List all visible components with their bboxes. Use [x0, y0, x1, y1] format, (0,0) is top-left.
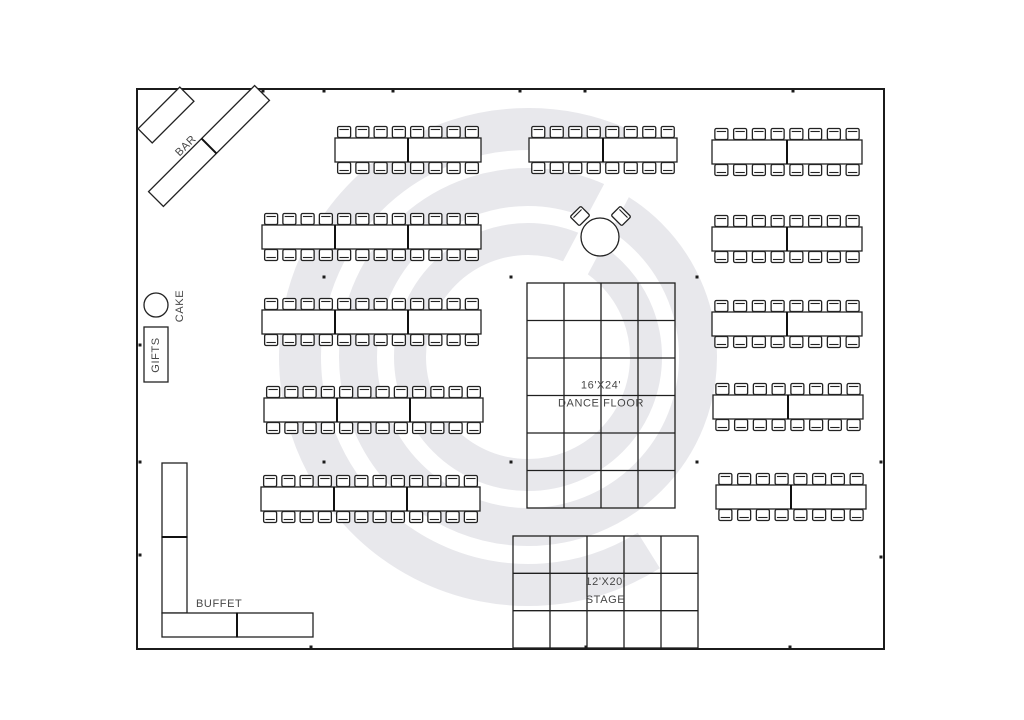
- round-table-top: [581, 218, 619, 256]
- chair: [794, 474, 807, 485]
- banquet-table: [712, 301, 862, 348]
- chair: [356, 299, 369, 310]
- chair: [374, 127, 387, 138]
- chair: [447, 250, 460, 261]
- chair: [827, 252, 840, 263]
- table-top: [262, 310, 481, 334]
- chair: [624, 163, 637, 174]
- banquet-table: [713, 384, 863, 431]
- chair: [846, 252, 859, 263]
- chair: [355, 512, 368, 523]
- chair: [447, 163, 460, 174]
- dance-floor-label: DANCE FLOOR: [558, 398, 644, 410]
- chair: [809, 216, 822, 227]
- chair: [846, 301, 859, 312]
- chair: [374, 299, 387, 310]
- chair: [264, 476, 277, 487]
- chair: [719, 474, 732, 485]
- chair: [447, 299, 460, 310]
- chair: [429, 214, 442, 225]
- chair: [376, 423, 389, 434]
- chair: [752, 129, 765, 140]
- chair: [465, 299, 478, 310]
- chair: [752, 165, 765, 176]
- chair: [265, 214, 278, 225]
- chair: [790, 129, 803, 140]
- chair: [318, 476, 331, 487]
- chair: [810, 420, 823, 431]
- chair: [850, 474, 863, 485]
- chair: [411, 163, 424, 174]
- chair: [392, 214, 405, 225]
- chair: [715, 301, 728, 312]
- chair: [464, 512, 477, 523]
- chair: [413, 387, 426, 398]
- chair: [790, 252, 803, 263]
- chair: [587, 127, 600, 138]
- chair: [301, 250, 314, 261]
- chair: [828, 384, 841, 395]
- chair: [319, 335, 332, 346]
- chair: [410, 476, 423, 487]
- chair: [771, 301, 784, 312]
- stage-size-label: 12'X20': [585, 576, 625, 588]
- chair: [734, 252, 747, 263]
- chair: [734, 337, 747, 348]
- chair: [429, 250, 442, 261]
- chair: [374, 335, 387, 346]
- chair: [734, 216, 747, 227]
- chair: [447, 335, 460, 346]
- chair: [391, 476, 404, 487]
- chair: [431, 387, 444, 398]
- chair: [283, 214, 296, 225]
- chair: [809, 301, 822, 312]
- chair: [392, 127, 405, 138]
- chair: [809, 252, 822, 263]
- chair: [790, 337, 803, 348]
- chair: [413, 423, 426, 434]
- chair: [606, 127, 619, 138]
- chair: [358, 387, 371, 398]
- chair: [775, 474, 788, 485]
- chair: [794, 510, 807, 521]
- pole-dot: [510, 276, 513, 279]
- chair: [338, 127, 351, 138]
- pole-dot: [139, 554, 142, 557]
- pole-dot: [310, 646, 313, 649]
- chair: [374, 163, 387, 174]
- chair: [771, 129, 784, 140]
- chair: [719, 510, 732, 521]
- chair: [771, 165, 784, 176]
- chair: [752, 337, 765, 348]
- chair: [715, 216, 728, 227]
- chair: [338, 335, 351, 346]
- dance-floor-size-label: 16'X24': [581, 380, 621, 392]
- chair: [831, 510, 844, 521]
- cake-table: CAKE: [144, 290, 186, 322]
- chair: [715, 252, 728, 263]
- chair: [411, 250, 424, 261]
- chair: [465, 127, 478, 138]
- chair: [283, 335, 296, 346]
- chair: [429, 335, 442, 346]
- chair: [734, 301, 747, 312]
- chair: [738, 474, 751, 485]
- chair: [267, 387, 280, 398]
- chair: [303, 423, 316, 434]
- chair: [846, 216, 859, 227]
- chair: [265, 335, 278, 346]
- chair: [465, 335, 478, 346]
- pole-dot: [584, 90, 587, 93]
- chair: [285, 387, 298, 398]
- buffet-table: [162, 463, 187, 537]
- chair: [429, 299, 442, 310]
- chair: [394, 387, 407, 398]
- chair: [337, 512, 350, 523]
- chair: [428, 476, 441, 487]
- chair: [753, 384, 766, 395]
- chair: [449, 387, 462, 398]
- chair: [337, 476, 350, 487]
- chair: [356, 214, 369, 225]
- chair: [392, 250, 405, 261]
- chair: [301, 214, 314, 225]
- chair: [265, 250, 278, 261]
- chair: [735, 384, 748, 395]
- chair: [752, 252, 765, 263]
- pole-dot: [792, 90, 795, 93]
- chair: [587, 163, 600, 174]
- chair: [809, 337, 822, 348]
- chair: [447, 127, 460, 138]
- chair: [321, 387, 334, 398]
- pole-dot: [880, 461, 883, 464]
- chair: [282, 476, 295, 487]
- chair: [813, 510, 826, 521]
- chair: [791, 384, 804, 395]
- chair: [716, 384, 729, 395]
- event-floor-plan: 16'X24'DANCE FLOOR12'X20'STAGEBARCAKEGIF…: [0, 0, 1024, 720]
- chair: [449, 423, 462, 434]
- chair: [828, 420, 841, 431]
- chair: [394, 423, 407, 434]
- chair: [391, 512, 404, 523]
- chair: [392, 335, 405, 346]
- chair: [340, 387, 353, 398]
- chair: [374, 250, 387, 261]
- buffet-table: [162, 537, 187, 613]
- chair: [550, 163, 563, 174]
- pole-dot: [139, 344, 142, 347]
- chair: [392, 163, 405, 174]
- chair: [319, 250, 332, 261]
- chair: [411, 299, 424, 310]
- chair: [532, 163, 545, 174]
- pole-dot: [519, 90, 522, 93]
- banquet-table: [712, 216, 862, 263]
- chair: [376, 387, 389, 398]
- chair: [532, 127, 545, 138]
- chair: [790, 165, 803, 176]
- chair: [429, 127, 442, 138]
- chair: [791, 420, 804, 431]
- table-top: [264, 398, 483, 422]
- chair: [827, 165, 840, 176]
- chair: [447, 214, 460, 225]
- chair: [285, 423, 298, 434]
- gifts-table: GIFTS: [144, 327, 168, 382]
- chair: [847, 384, 860, 395]
- chair: [661, 163, 674, 174]
- stage-label: STAGE: [586, 594, 625, 606]
- watermark-inner-ring: [410, 239, 646, 475]
- pole-dot: [323, 461, 326, 464]
- chair: [411, 127, 424, 138]
- chair: [319, 299, 332, 310]
- chair: [643, 163, 656, 174]
- chair: [356, 163, 369, 174]
- chair: [550, 127, 563, 138]
- chair: [846, 165, 859, 176]
- chair: [827, 129, 840, 140]
- chair: [374, 214, 387, 225]
- chair: [775, 510, 788, 521]
- chair: [790, 301, 803, 312]
- chair: [301, 299, 314, 310]
- chair: [282, 512, 295, 523]
- chair: [411, 335, 424, 346]
- chair: [827, 216, 840, 227]
- chair: [300, 476, 313, 487]
- chair: [283, 299, 296, 310]
- chair: [569, 127, 582, 138]
- chair: [752, 301, 765, 312]
- cake-table-top: [144, 293, 168, 317]
- chair: [715, 337, 728, 348]
- chair: [446, 512, 459, 523]
- chair: [301, 335, 314, 346]
- chair: [846, 129, 859, 140]
- chair: [752, 216, 765, 227]
- chair: [813, 474, 826, 485]
- pole-dot: [880, 556, 883, 559]
- chair: [318, 512, 331, 523]
- chair: [429, 163, 442, 174]
- chair: [467, 423, 480, 434]
- chair: [356, 335, 369, 346]
- chair: [265, 299, 278, 310]
- chair: [358, 423, 371, 434]
- chair: [373, 512, 386, 523]
- chair: [338, 299, 351, 310]
- chair: [810, 384, 823, 395]
- chair: [847, 420, 860, 431]
- chair: [771, 216, 784, 227]
- chair: [338, 214, 351, 225]
- chair: [643, 127, 656, 138]
- chair: [355, 476, 368, 487]
- chair: [392, 299, 405, 310]
- chair: [465, 163, 478, 174]
- chair: [319, 214, 332, 225]
- buffet-label: BUFFET: [196, 598, 242, 610]
- chair: [264, 512, 277, 523]
- chair: [465, 250, 478, 261]
- chair: [410, 512, 423, 523]
- chair: [411, 214, 424, 225]
- banquet-table: [716, 474, 866, 521]
- chair: [716, 420, 729, 431]
- chair: [771, 337, 784, 348]
- chair: [772, 420, 785, 431]
- chair: [373, 476, 386, 487]
- chair: [831, 474, 844, 485]
- chair: [738, 510, 751, 521]
- chair: [569, 163, 582, 174]
- chair: [356, 127, 369, 138]
- chair: [850, 510, 863, 521]
- chair: [606, 163, 619, 174]
- chair: [753, 420, 766, 431]
- bar-area: BAR: [138, 86, 269, 207]
- chair: [827, 301, 840, 312]
- banquet-table: [712, 129, 862, 176]
- chair: [446, 476, 459, 487]
- chair: [338, 250, 351, 261]
- pole-dot: [323, 90, 326, 93]
- pole-dot: [392, 90, 395, 93]
- chair: [431, 423, 444, 434]
- pole-dot: [139, 461, 142, 464]
- pole-dot: [696, 461, 699, 464]
- cake-label: CAKE: [174, 290, 186, 322]
- chair: [624, 127, 637, 138]
- chair: [300, 512, 313, 523]
- buffet-table: [162, 613, 237, 637]
- chair: [809, 165, 822, 176]
- buffet-table: [237, 613, 313, 637]
- gifts-label: GIFTS: [150, 337, 162, 372]
- pole-dot: [323, 276, 326, 279]
- chair: [756, 474, 769, 485]
- chair: [790, 216, 803, 227]
- table-top: [262, 225, 481, 249]
- chair: [809, 129, 822, 140]
- chair: [303, 387, 316, 398]
- chair: [428, 512, 441, 523]
- chair: [846, 337, 859, 348]
- pole-dot: [510, 461, 513, 464]
- chair: [756, 510, 769, 521]
- bar-table: [138, 87, 194, 143]
- table-top: [261, 487, 480, 511]
- chair: [715, 129, 728, 140]
- pole-dot: [789, 646, 792, 649]
- chair: [267, 423, 280, 434]
- chair: [356, 250, 369, 261]
- chair: [338, 163, 351, 174]
- chair: [340, 423, 353, 434]
- chair: [715, 165, 728, 176]
- chair: [321, 423, 334, 434]
- chair: [734, 165, 747, 176]
- pole-dot: [696, 276, 699, 279]
- chair: [771, 252, 784, 263]
- chair: [661, 127, 674, 138]
- chair: [464, 476, 477, 487]
- chair: [283, 250, 296, 261]
- chair: [734, 129, 747, 140]
- chair: [772, 384, 785, 395]
- chair: [465, 214, 478, 225]
- chair: [827, 337, 840, 348]
- chair: [735, 420, 748, 431]
- chair: [467, 387, 480, 398]
